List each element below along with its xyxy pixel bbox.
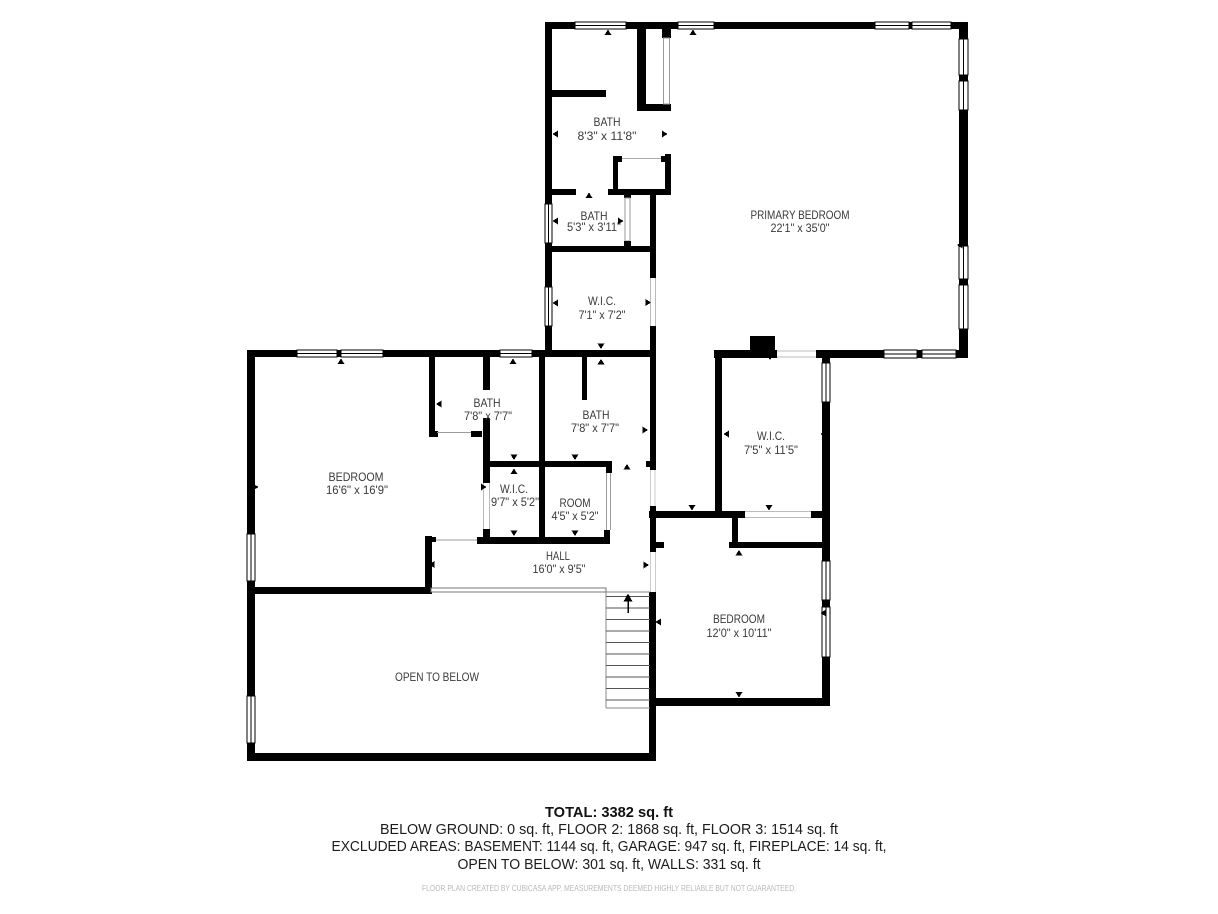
svg-text:PRIMARY BEDROOM: PRIMARY BEDROOM — [751, 208, 850, 222]
svg-text:TOTAL: 3382 sq. ft: TOTAL: 3382 sq. ft — [545, 804, 673, 821]
svg-text:BATH: BATH — [583, 408, 610, 422]
svg-text:12'0" x 10'11": 12'0" x 10'11" — [707, 626, 772, 640]
svg-text:BEDROOM: BEDROOM — [329, 470, 384, 484]
svg-text:8'3" x 11'8": 8'3" x 11'8" — [578, 129, 637, 143]
svg-text:BEDROOM: BEDROOM — [713, 612, 765, 626]
svg-text:4'5" x 5'2": 4'5" x 5'2" — [552, 509, 599, 523]
svg-text:7'8" x 7'7": 7'8" x 7'7" — [464, 409, 512, 423]
svg-text:16'0" x 9'5": 16'0" x 9'5" — [533, 562, 586, 576]
svg-text:OPEN TO BELOW: OPEN TO BELOW — [395, 670, 480, 684]
svg-text:7'8" x 7'7": 7'8" x 7'7" — [571, 421, 619, 435]
svg-text:BELOW GROUND: 0 sq. ft, FLOOR: BELOW GROUND: 0 sq. ft, FLOOR 2: 1868 sq… — [380, 822, 838, 838]
svg-text:W.I.C.: W.I.C. — [757, 429, 785, 443]
svg-text:OPEN TO BELOW: 301 sq. ft, WAL: OPEN TO BELOW: 301 sq. ft, WALLS: 331 sq… — [458, 857, 761, 873]
svg-text:7'1" x 7'2": 7'1" x 7'2" — [579, 308, 626, 322]
svg-text:BATH: BATH — [594, 115, 621, 129]
svg-text:ROOM: ROOM — [560, 496, 591, 510]
svg-text:EXCLUDED AREAS: BASEMENT: 1144: EXCLUDED AREAS: BASEMENT: 1144 sq. ft, G… — [332, 839, 887, 855]
svg-text:HALL: HALL — [546, 549, 570, 563]
svg-text:16'6" x 16'9": 16'6" x 16'9" — [326, 483, 388, 497]
svg-text:W.I.C.: W.I.C. — [588, 294, 616, 308]
svg-text:9'7" x 5'2": 9'7" x 5'2" — [491, 495, 539, 509]
svg-text:22'1" x 35'0": 22'1" x 35'0" — [771, 221, 830, 235]
svg-text:BATH: BATH — [474, 396, 501, 410]
svg-text:5'3" x 3'11": 5'3" x 3'11" — [567, 220, 621, 234]
svg-text:FLOOR PLAN CREATED BY CUBICASA: FLOOR PLAN CREATED BY CUBICASA APP. MEAS… — [422, 884, 796, 893]
svg-text:W.I.C.: W.I.C. — [500, 482, 528, 496]
svg-text:7'5" x 11'5": 7'5" x 11'5" — [744, 443, 798, 457]
